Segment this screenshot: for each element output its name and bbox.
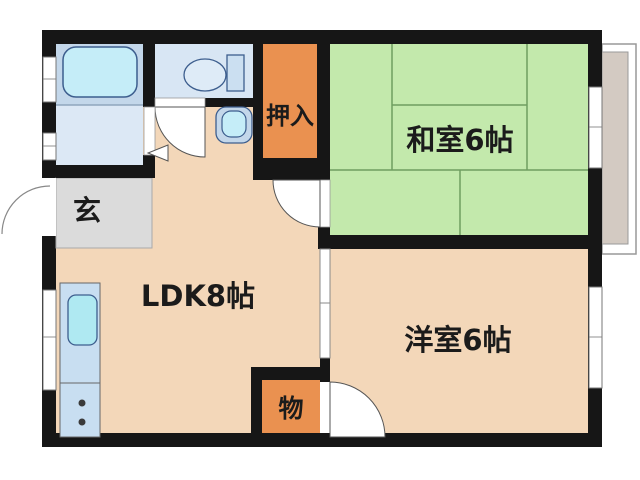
wall-bath-toilet [143,44,155,107]
bathtub-icon [63,47,137,97]
window-kitchen [43,290,56,390]
window-bathroom [43,57,56,102]
kitchen-unit-icon [60,283,100,437]
room-washroom [56,105,143,168]
balcony-floor [602,52,628,244]
window-washitsu [589,87,602,168]
toilet-tank-icon [227,55,244,91]
label-mono: 物 [278,394,303,423]
label-oshiire: 押入 [266,102,314,130]
label-ldk: LDK8帖 [141,279,255,313]
floor-plan-canvas: 和室6帖 洋室6帖 LDK8帖 押入 物 玄 [0,0,640,480]
window-washroom [43,133,56,160]
wall-washitsu-youshitsu [318,235,602,249]
window-youshitsu [589,287,602,388]
stove-burner-icon [79,400,86,407]
toilet-icon [184,59,226,91]
wall-hall-washitsu-lower [318,227,330,249]
stove-burner-icon [79,419,86,426]
kitchen-sink-icon [68,295,97,345]
room-oshiire [263,44,317,158]
floor-plan: 和室6帖 洋室6帖 LDK8帖 押入 物 玄 [0,0,640,480]
label-youshitsu: 洋室6帖 [404,323,511,357]
wall-toilet-bottom-left [143,98,155,107]
wall-washroom-bottom [56,165,155,178]
toilet-door-opening [155,98,205,107]
washroom-door-opening [144,107,155,155]
youshitsu-door-opening [320,382,330,433]
wall-toilet-bottom-right [205,98,257,107]
room-genkan [56,178,152,248]
washbasin-bowl-icon [222,111,246,137]
label-genkan: 玄 [73,194,101,227]
label-washitsu: 和室6帖 [406,123,513,157]
